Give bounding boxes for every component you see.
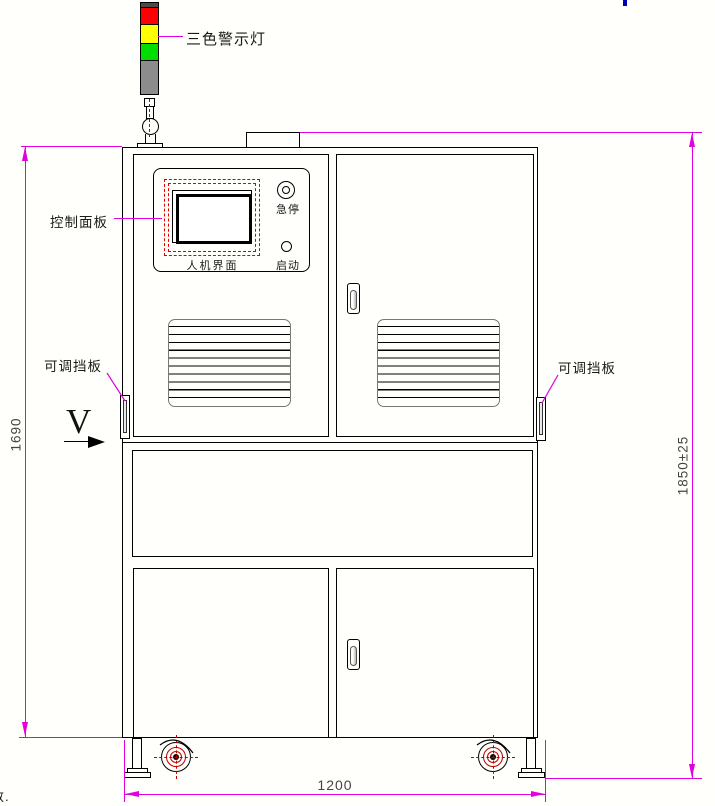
left-baffle-plate bbox=[123, 400, 127, 433]
right-adjustable-baffle bbox=[536, 397, 546, 441]
dim-left-line bbox=[25, 146, 26, 737]
dim-left-arrow-top bbox=[22, 147, 28, 161]
dim-bottom-line bbox=[124, 794, 545, 795]
upper-door-handle-grip bbox=[350, 290, 357, 310]
dim-right-arrow-top bbox=[689, 133, 695, 147]
dim-bottom-ext-right bbox=[545, 740, 546, 802]
dim-left-arrow-bottom bbox=[22, 722, 28, 736]
hmi-screen-bezel[interactable] bbox=[176, 194, 252, 244]
tower-light-red-segment bbox=[140, 7, 159, 25]
left-caster-crosshair-v bbox=[176, 735, 177, 779]
right-foot-pad-bottom bbox=[518, 772, 545, 778]
left-louver-slats bbox=[169, 326, 290, 401]
lower-door-handle[interactable] bbox=[347, 639, 360, 670]
machine-front-view-drawing: 三色警示灯 人机界面 急停 启动 控制面板 可调挡板 可调 bbox=[0, 0, 715, 806]
right-louver-slats bbox=[378, 326, 499, 401]
dim-bottom-arrow-left bbox=[125, 791, 139, 797]
right-caster-crosshair-v bbox=[493, 735, 494, 779]
tower-light-centerline bbox=[149, 99, 150, 137]
right-baffle-label: 可调挡板 bbox=[558, 357, 616, 377]
dim-right-ext-top bbox=[300, 132, 702, 133]
hmi-label: 人机界面 bbox=[172, 257, 253, 273]
start-label: 启动 bbox=[276, 257, 300, 273]
control-panel-leader-line bbox=[114, 218, 162, 219]
dim-right-arrow-bottom bbox=[689, 764, 695, 778]
lower-door-handle-grip bbox=[350, 646, 357, 666]
lower-left-door bbox=[133, 568, 329, 738]
tower-light-green-segment bbox=[140, 43, 159, 61]
top-junction-box bbox=[246, 132, 300, 148]
tower-light-yellow-segment bbox=[140, 24, 159, 44]
view-arrow-head bbox=[88, 436, 105, 448]
dim-left-ext-top bbox=[21, 146, 122, 147]
left-baffle-label: 可调挡板 bbox=[44, 355, 102, 375]
mid-rail-seam bbox=[122, 442, 538, 443]
tower-light bbox=[140, 3, 159, 95]
left-louver-vent bbox=[168, 319, 291, 407]
right-leveling-leg bbox=[526, 738, 536, 769]
dim-right-ext-bottom bbox=[545, 778, 702, 779]
tower-light-label: 三色警示灯 bbox=[186, 28, 266, 49]
upper-door-handle[interactable] bbox=[347, 283, 360, 314]
estop-label: 急停 bbox=[276, 201, 300, 217]
start-button[interactable] bbox=[281, 241, 292, 252]
tower-light-ball-joint bbox=[142, 118, 159, 135]
right-baffle-plate bbox=[539, 402, 543, 435]
cropped-corner-text: 数. bbox=[0, 786, 10, 805]
tower-light-gray-segment bbox=[140, 60, 159, 95]
dim-bottom-text: 1200 bbox=[305, 777, 365, 793]
dim-left-ext-bottom bbox=[19, 737, 122, 738]
blue-tick-mark bbox=[623, 0, 627, 6]
dim-left-text: 1690 bbox=[9, 413, 24, 457]
dim-bottom-arrow-right bbox=[531, 791, 545, 797]
left-adjustable-baffle bbox=[120, 395, 130, 439]
right-louver-vent bbox=[377, 319, 500, 407]
left-leveling-leg bbox=[132, 738, 142, 769]
middle-panel bbox=[132, 450, 533, 557]
dim-right-line bbox=[692, 132, 693, 779]
dim-right-text: 1850±25 bbox=[676, 431, 691, 501]
lower-right-door bbox=[336, 568, 534, 738]
tower-light-leader-line bbox=[158, 36, 183, 37]
estop-button-inner[interactable] bbox=[282, 186, 290, 194]
left-foot-pad-bottom bbox=[124, 772, 151, 778]
control-panel-label: 控制面板 bbox=[50, 211, 108, 231]
